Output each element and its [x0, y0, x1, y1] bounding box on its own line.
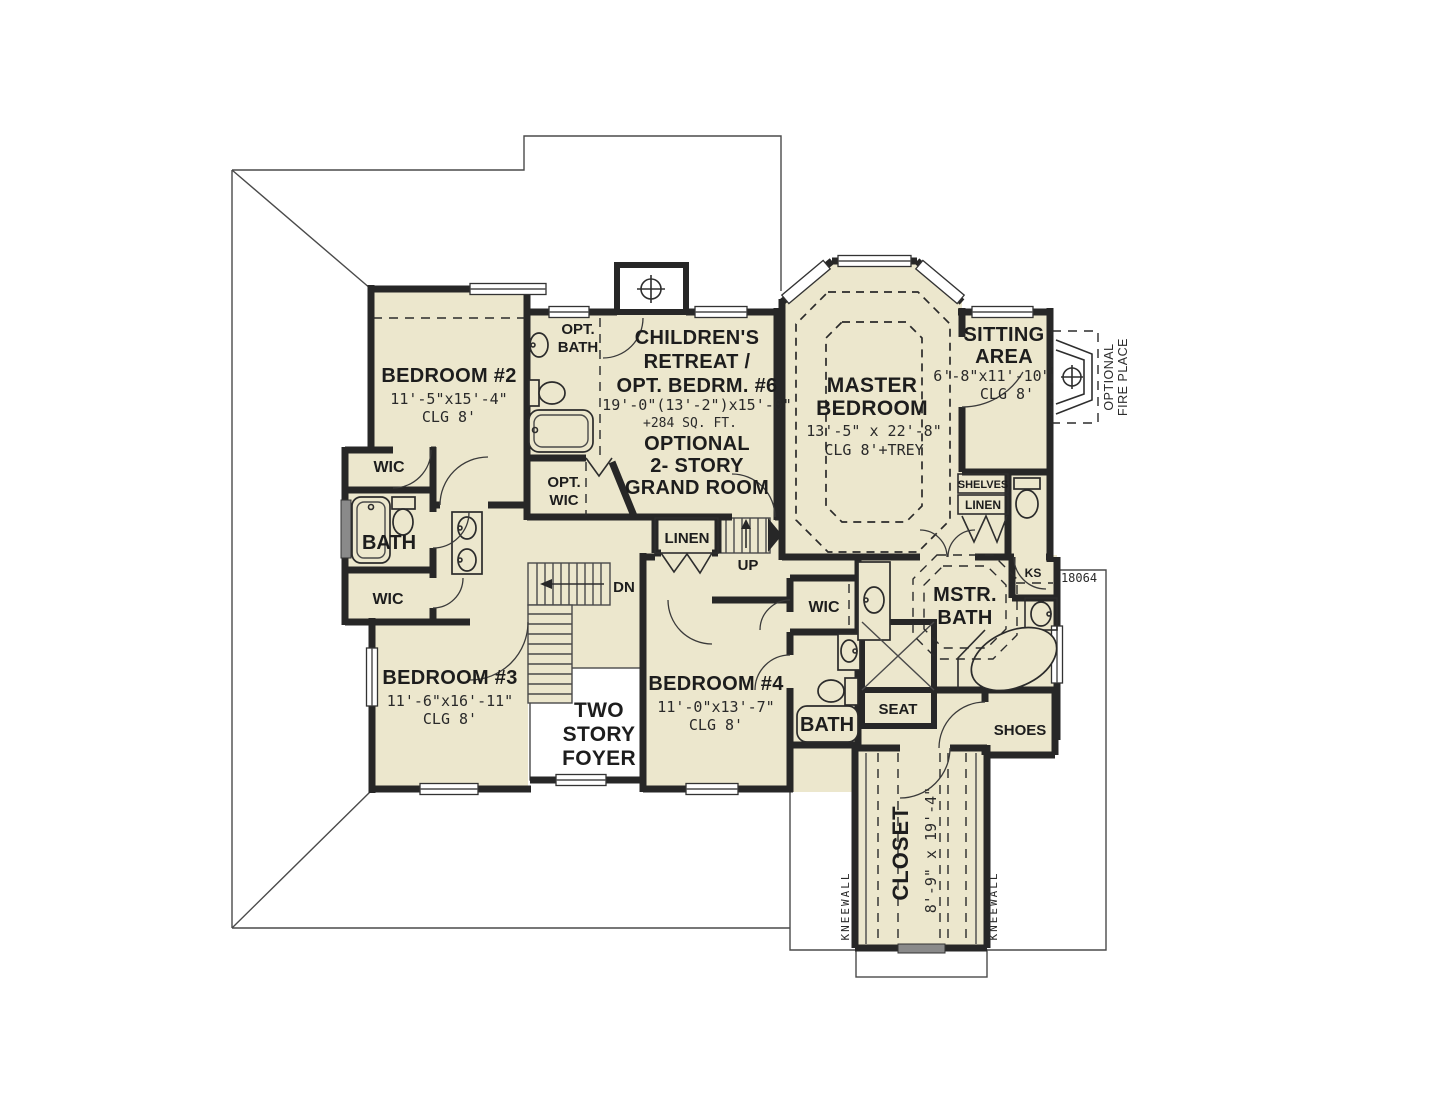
bath-left-label: BATH: [362, 532, 416, 554]
wic-bed4-label: WIC: [808, 599, 840, 616]
double-vanity: [452, 512, 482, 574]
foyer-label-2: STORY: [563, 723, 636, 746]
fireplace-label-2: FIRE PLACE: [1116, 338, 1130, 416]
up-label: UP: [738, 557, 759, 574]
vanity-bed4-bath: [838, 634, 860, 670]
window: [972, 307, 1033, 318]
master-clg: CLG 8'+TREY: [824, 441, 923, 459]
grand-room-2: 2- STORY: [650, 455, 744, 477]
master-name-2: BEDROOM: [816, 397, 928, 420]
shoes-label: SHOES: [994, 722, 1047, 739]
sitting-name-2: AREA: [975, 346, 1033, 368]
sitting-name-1: SITTING: [964, 324, 1045, 346]
sitting-clg: CLG 8': [980, 385, 1034, 403]
bedroom2-name: BEDROOM #2: [381, 365, 516, 387]
toilet-left: [392, 497, 415, 535]
bedroom4-dims: 11'-0"x13'-7": [657, 698, 774, 716]
ks-label: KS: [1025, 566, 1042, 580]
closet-dims: 8'-9" x 19'-4": [922, 787, 940, 913]
window: [367, 648, 378, 706]
fireplace-label-1: OPTIONAL: [1102, 343, 1116, 410]
vanity-master-left: [858, 562, 890, 640]
seat-label: SEAT: [879, 701, 918, 718]
childrens-name-1: CHILDREN'S: [635, 327, 759, 349]
chimney-box: [617, 265, 686, 312]
grand-room-1: OPTIONAL: [644, 433, 750, 455]
bathtub-opt-bath: [529, 410, 593, 452]
window: [549, 307, 589, 318]
wic-left-bottom-label: WIC: [372, 591, 404, 608]
linen-hall-label: LINEN: [665, 530, 710, 547]
window: [470, 284, 546, 295]
master-bath-label-2: BATH: [937, 607, 992, 629]
window: [695, 307, 747, 318]
window: [420, 784, 478, 795]
childrens-name-3: OPT. BEDRM. #6: [617, 375, 778, 397]
grand-room-3: GRAND ROOM: [625, 477, 769, 499]
shelves-label: SHELVES: [958, 479, 1009, 491]
master-bath-label-1: MSTR.: [933, 584, 997, 606]
optional-fireplace: [1052, 331, 1098, 423]
wic-left-top-label: WIC: [373, 459, 405, 476]
bath-bed4-label: BATH: [800, 714, 854, 736]
toilet-water-closet: [1014, 478, 1040, 518]
childrens-sqft: +284 SQ. FT.: [643, 416, 737, 431]
foyer-label-3: FOYER: [562, 747, 636, 770]
window: [686, 784, 738, 795]
opt-wic-label-2: WIC: [549, 492, 578, 509]
closet-name: CLOSET: [888, 805, 913, 900]
bedroom4-clg: CLG 8': [689, 716, 743, 734]
dn-label: DN: [613, 579, 635, 596]
bedroom3-name: BEDROOM #3: [382, 667, 517, 689]
master-name-1: MASTER: [827, 374, 917, 397]
floor-plan-svg: BEDROOM #2 11'-5"x15'-4" CLG 8' OPT. BAT…: [0, 0, 1445, 1116]
opt-bath-label-1: OPT.: [561, 321, 594, 338]
bedroom3-clg: CLG 8': [423, 710, 477, 728]
childrens-name-2: RETREAT /: [644, 351, 751, 373]
master-dims: 13'-5" x 22'-8": [806, 422, 941, 440]
childrens-dims: 19'-0"(13'-2")x15'-0": [602, 396, 792, 414]
opt-wic-label-1: OPT.: [547, 474, 580, 491]
bedroom4-name: BEDROOM #4: [648, 673, 784, 695]
sitting-dims: 6'-8"x11'-10": [933, 367, 1050, 385]
kneewall-right-label: KNEEWALL: [987, 872, 1000, 941]
floor-plan-page: BEDROOM #2 11'-5"x15'-4" CLG 8' OPT. BAT…: [0, 0, 1445, 1116]
toilet-bed4-bath: [818, 678, 858, 705]
toilet-opt-bath: [529, 380, 565, 406]
bedroom2-dims: 11'-5"x15'-4": [390, 390, 507, 408]
bedroom3-dims: 11'-6"x16'-11": [387, 692, 513, 710]
kneewall-left-label: KNEEWALL: [839, 872, 852, 941]
linen-master-label: LINEN: [965, 498, 1001, 512]
plan-number: 18064: [1061, 571, 1097, 585]
window: [556, 775, 606, 786]
bedroom2-clg: CLG 8': [422, 408, 476, 426]
foyer-label-1: TWO: [574, 699, 624, 722]
window: [838, 256, 911, 267]
opt-bath-label-2: BATH: [558, 339, 599, 356]
sink-opt-bath: [530, 333, 548, 357]
window: [341, 500, 351, 558]
